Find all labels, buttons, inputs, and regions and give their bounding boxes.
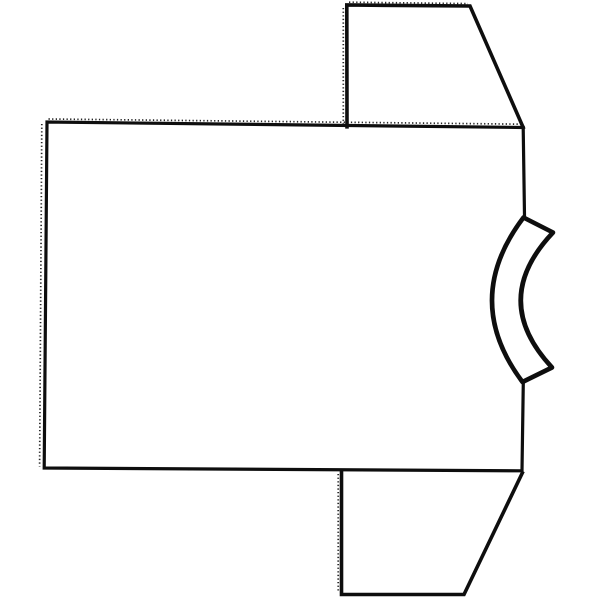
collar-band-outline — [492, 218, 553, 383]
tshirt-drawing-canvas — [0, 0, 600, 600]
bottom-sleeve-outline — [342, 471, 523, 595]
top-sleeve-outline — [347, 5, 523, 128]
shirt-body-outline — [44, 122, 524, 471]
tshirt-line-drawing — [0, 0, 600, 600]
stitch-marks-left-edge — [40, 124, 42, 467]
